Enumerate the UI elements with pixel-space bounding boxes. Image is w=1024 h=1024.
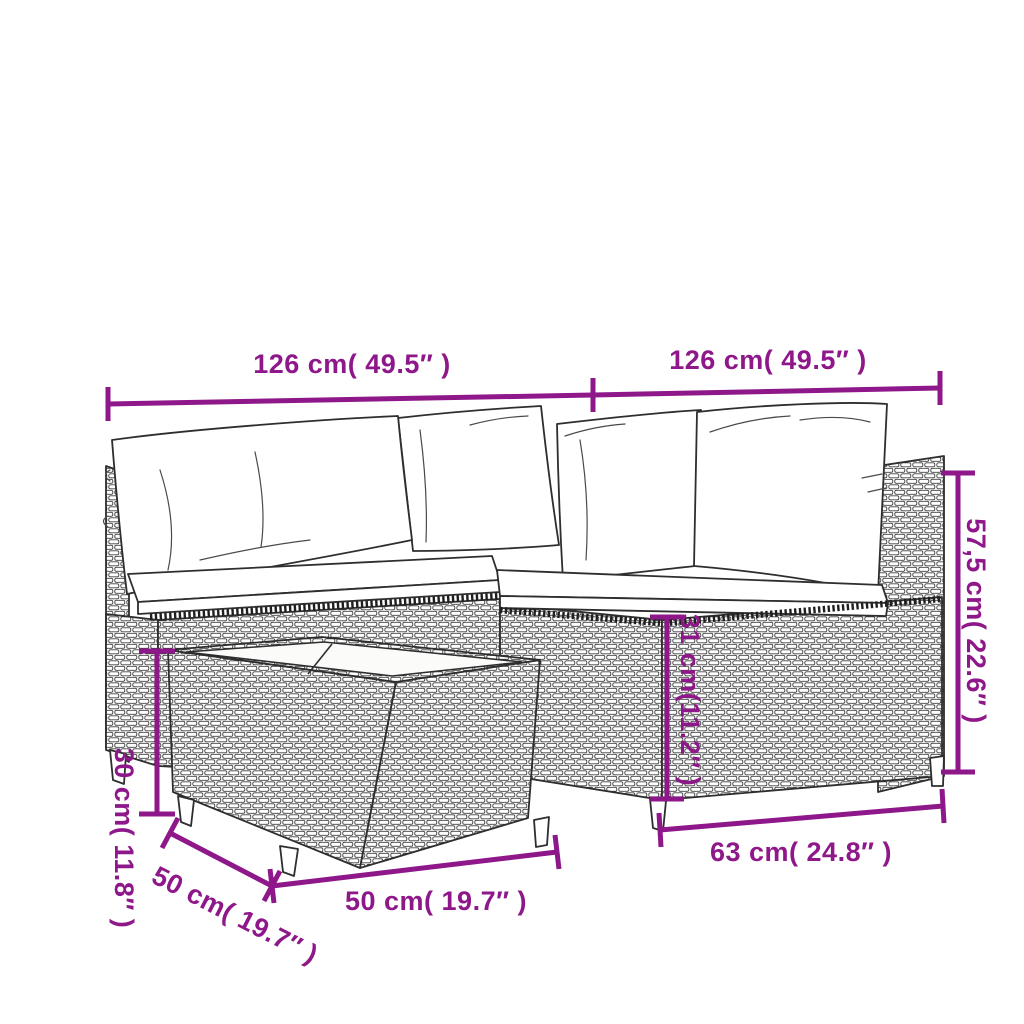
tick xyxy=(555,835,559,869)
tick xyxy=(659,813,661,847)
table-leg-right xyxy=(534,817,549,847)
tick xyxy=(162,818,178,848)
furniture-set xyxy=(104,403,945,876)
dim-back-height-label: 57,5 cm( 22.6″ ) xyxy=(961,518,991,724)
dim-sofa-width-left-label: 126 cm( 49.5″ ) xyxy=(253,349,451,379)
dim-sofa-width-right: 126 cm( 49.5″ ) xyxy=(593,345,940,405)
table-front-left-face xyxy=(168,650,396,868)
pillow-corner-left xyxy=(398,406,559,551)
dim-back-height: 57,5 cm( 22.6″ ) xyxy=(941,473,991,772)
dim-table-height-label: 30 cm( 11.8″ ) xyxy=(109,748,139,929)
tick xyxy=(942,789,944,823)
dim-sofa-width-right-label: 126 cm( 49.5″ ) xyxy=(669,345,867,375)
pillow-corner-right xyxy=(557,410,701,581)
pillow-right xyxy=(694,403,887,594)
dim-seat-depth-label: 63 cm( 24.8″ ) xyxy=(710,837,892,867)
table-leg-front xyxy=(280,846,298,876)
sofa-left-base-side xyxy=(106,614,158,766)
product-diagram: 126 cm( 49.5″ ) 126 cm( 49.5″ ) 57,5 cm(… xyxy=(0,0,1024,1024)
diagram-canvas: 126 cm( 49.5″ ) 126 cm( 49.5″ ) 57,5 cm(… xyxy=(0,0,1024,1024)
dim-table-width-label: 50 cm( 19.7″ ) xyxy=(345,886,527,916)
dim-seat-depth: 63 cm( 24.8″ ) xyxy=(659,789,944,867)
dim-seat-height-label: 31 cm(11.2″ ) xyxy=(675,614,705,787)
coffee-table xyxy=(168,637,549,876)
table-leg-left xyxy=(178,796,194,826)
dim-table-depth-label: 50 cm( 19.7″ ) xyxy=(147,860,323,969)
